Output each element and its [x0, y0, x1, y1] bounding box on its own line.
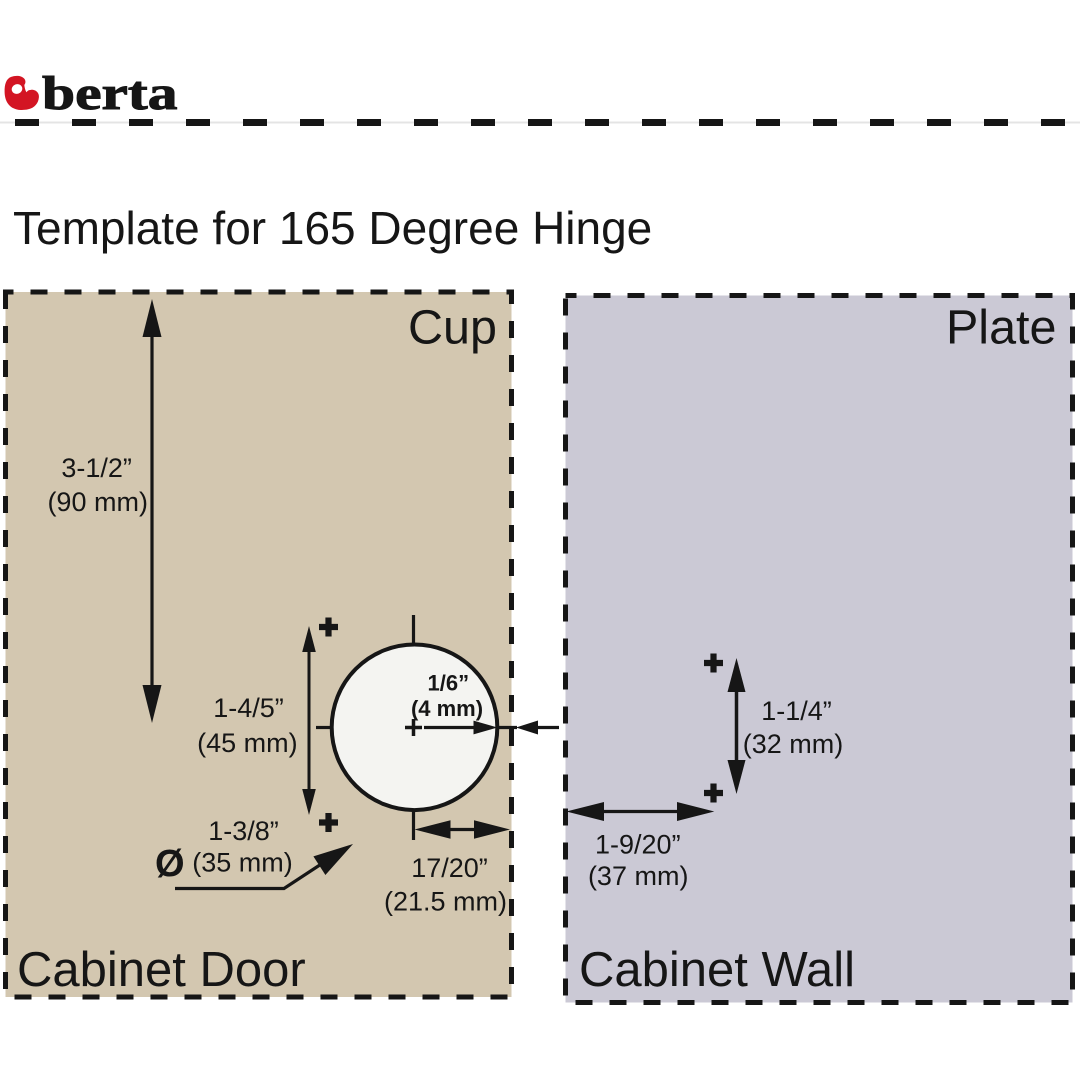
svg-text:(35 mm): (35 mm) [192, 848, 293, 878]
svg-text:Ø: Ø [155, 843, 185, 885]
svg-text:1-9/20”: 1-9/20” [595, 830, 681, 860]
svg-text:(45 mm): (45 mm) [197, 728, 298, 758]
svg-text:17/20”: 17/20” [411, 853, 488, 883]
svg-text:Plate: Plate [946, 301, 1057, 355]
svg-text:1/6”: 1/6” [428, 671, 470, 696]
svg-text:(37 mm): (37 mm) [588, 861, 689, 891]
svg-text:3-1/2”: 3-1/2” [61, 453, 132, 483]
svg-text:(90 mm): (90 mm) [47, 487, 148, 517]
svg-text:(32 mm): (32 mm) [743, 729, 844, 759]
svg-text:Cabinet Door: Cabinet Door [17, 943, 306, 997]
svg-text:1-3/8”: 1-3/8” [208, 816, 279, 846]
svg-text:berta: berta [42, 66, 177, 119]
svg-text:(21.5 mm): (21.5 mm) [384, 887, 507, 917]
svg-text:1-1/4”: 1-1/4” [761, 696, 832, 726]
svg-text:Template for 165 Degree Hinge: Template for 165 Degree Hinge [13, 202, 652, 254]
svg-text:Cabinet Wall: Cabinet Wall [579, 943, 855, 997]
svg-text:(4 mm): (4 mm) [411, 696, 483, 721]
svg-text:1-4/5”: 1-4/5” [213, 693, 284, 723]
svg-text:Cup: Cup [408, 301, 497, 355]
